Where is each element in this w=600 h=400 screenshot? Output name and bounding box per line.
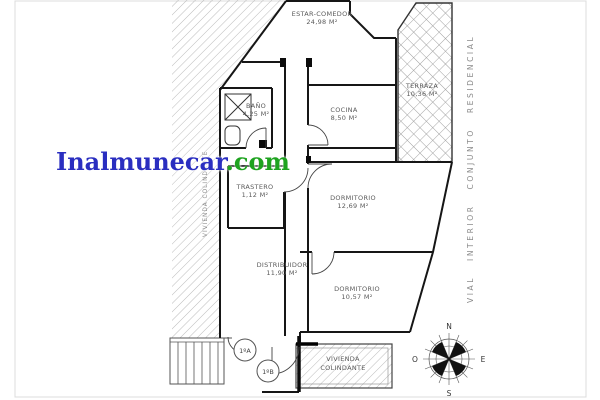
svg-text:ESTAR-COMEDOR: ESTAR-COMEDOR	[292, 10, 353, 18]
svg-text:DORMITORIO: DORMITORIO	[330, 194, 376, 202]
floor-plan-canvas: ESTAR-COMEDOR 24,98 M² TERRAZA 10,36 M² …	[0, 0, 600, 400]
compass-east-label: E	[481, 355, 486, 364]
room-label-terrace: TERRAZA 10,36 M²	[405, 82, 439, 98]
neighbor-box-label: VIVIENDA COLINDANTE	[320, 355, 365, 372]
room-label-bedroom1: DORMITORIO 12,69 M²	[330, 194, 376, 210]
svg-text:COCINA: COCINA	[330, 106, 357, 114]
svg-text:TERRAZA: TERRAZA	[405, 82, 439, 90]
room-label-storage: TRASTERO 1,12 M²	[236, 183, 274, 199]
room-label-kitchen: COCINA 8,50 M²	[330, 106, 357, 122]
watermark-logo: Inalmunecar.com	[56, 150, 290, 174]
svg-text:8,50 M²: 8,50 M²	[331, 114, 358, 122]
svg-text:11,90 M²: 11,90 M²	[266, 269, 297, 277]
svg-text:1,12 M²: 1,12 M²	[242, 191, 269, 199]
svg-text:COLINDANTE: COLINDANTE	[320, 364, 365, 372]
svg-text:VIVIENDA: VIVIENDA	[326, 355, 360, 363]
svg-text:DISTRIBUIDOR: DISTRIBUIDOR	[257, 261, 308, 269]
svg-text:BAÑO: BAÑO	[246, 101, 266, 110]
room-label-living: ESTAR-COMEDOR 24,98 M²	[292, 10, 353, 26]
svg-text:24,98 M²: 24,98 M²	[306, 18, 337, 26]
floorplan-screenshot: ESTAR-COMEDOR 24,98 M² TERRAZA 10,36 M² …	[0, 0, 600, 400]
street-label-vertical: VIAL INTERIOR CONJUNTO RESIDENCIAL	[466, 35, 475, 303]
svg-text:10,57 M²: 10,57 M²	[341, 293, 372, 301]
unit-markers: 1ºA 1ºB	[234, 339, 279, 382]
compass-south-label: S	[447, 389, 452, 398]
compass-north-label: N	[446, 322, 452, 331]
room-label-hall: DISTRIBUIDOR 11,90 M²	[257, 261, 308, 277]
toilet	[225, 126, 240, 145]
watermark-tld-text: .com	[226, 147, 290, 176]
svg-text:4,25 M²: 4,25 M²	[243, 110, 270, 118]
unit-label-1b: 1ºB	[262, 368, 274, 376]
compass-west-label: O	[412, 355, 418, 364]
compass-rose: N S E O	[412, 322, 486, 398]
watermark-brand-text: Inalmunecar	[56, 147, 226, 176]
unit-label-1a: 1ºA	[239, 347, 251, 355]
room-label-bath: BAÑO 4,25 M²	[243, 101, 270, 118]
svg-text:TRASTERO: TRASTERO	[236, 183, 274, 191]
staircase	[170, 338, 224, 384]
room-label-bedroom2: DORMITORIO 10,57 M²	[334, 285, 380, 301]
svg-text:DORMITORIO: DORMITORIO	[334, 285, 380, 293]
svg-text:10,36 M²: 10,36 M²	[406, 90, 437, 98]
svg-text:12,69 M²: 12,69 M²	[337, 202, 368, 210]
